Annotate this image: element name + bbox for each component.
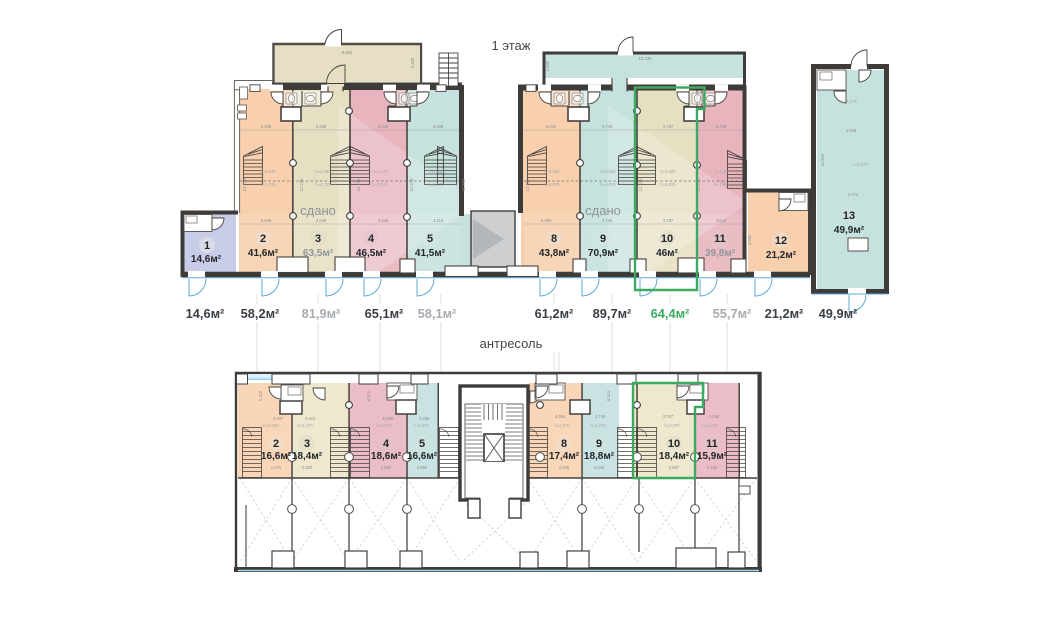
svg-text:39,8м²: 39,8м²: [705, 248, 736, 259]
svg-text:12.318: 12.318: [638, 178, 643, 191]
svg-text:h=3,300: h=3,300: [660, 169, 676, 174]
svg-text:64,4м²: 64,4м²: [651, 306, 690, 321]
svg-text:1.970: 1.970: [271, 465, 282, 470]
svg-text:1 этаж: 1 этаж: [492, 38, 531, 53]
svg-text:9: 9: [600, 233, 606, 245]
svg-text:2.150: 2.150: [707, 465, 718, 470]
svg-text:15,9м²: 15,9м²: [697, 451, 728, 462]
svg-text:46,5м²: 46,5м²: [356, 248, 387, 259]
svg-text:h=4,070: h=4,070: [852, 162, 868, 167]
svg-text:3.246: 3.246: [709, 414, 720, 419]
svg-text:h=4,173: h=4,173: [841, 99, 857, 104]
svg-text:12.275: 12.275: [409, 178, 414, 191]
svg-text:41,6м²: 41,6м²: [248, 248, 279, 259]
svg-text:3.797: 3.797: [663, 414, 674, 419]
svg-text:3.646: 3.646: [316, 218, 327, 223]
svg-text:18,6м²: 18,6м²: [371, 451, 402, 462]
svg-text:1: 1: [204, 240, 210, 252]
svg-text:16,6м²: 16,6м²: [407, 451, 438, 462]
svg-text:3.080: 3.080: [747, 234, 752, 245]
svg-text:5: 5: [427, 233, 433, 245]
svg-text:3.746: 3.746: [602, 124, 613, 129]
svg-text:2: 2: [273, 438, 279, 450]
svg-text:5.008: 5.008: [316, 124, 327, 129]
svg-text:4.115: 4.115: [433, 218, 444, 223]
svg-text:2.600: 2.600: [302, 465, 313, 470]
svg-text:61,2м²: 61,2м²: [535, 306, 574, 321]
svg-text:h=2,200: h=2,200: [263, 423, 279, 428]
svg-text:3: 3: [315, 233, 321, 245]
svg-text:h=2,540: h=2,540: [260, 169, 276, 174]
svg-text:16,6м²: 16,6м²: [261, 451, 292, 462]
svg-text:3.797: 3.797: [663, 218, 674, 223]
svg-text:46м²: 46м²: [656, 248, 679, 259]
svg-text:2.560: 2.560: [381, 465, 392, 470]
svg-text:18,4м²: 18,4м²: [292, 451, 323, 462]
svg-text:21,2м²: 21,2м²: [765, 306, 804, 321]
svg-text:h=2,270: h=2,270: [297, 423, 313, 428]
svg-text:3.296: 3.296: [716, 124, 727, 129]
svg-text:2: 2: [260, 233, 266, 245]
svg-text:h=2,320: h=2,320: [428, 169, 444, 174]
svg-text:h=2,270: h=2,270: [413, 423, 429, 428]
svg-text:3.514: 3.514: [716, 218, 727, 223]
svg-text:70,9м²: 70,9м²: [588, 248, 619, 259]
svg-text:5.004: 5.004: [546, 124, 557, 129]
svg-text:6.110: 6.110: [258, 390, 263, 401]
svg-text:11.964: 11.964: [820, 153, 825, 166]
svg-text:9: 9: [596, 438, 602, 450]
svg-text:12: 12: [775, 235, 787, 247]
svg-text:13: 13: [843, 210, 855, 222]
svg-text:6.110: 6.110: [606, 390, 611, 401]
svg-text:5.465: 5.465: [383, 416, 394, 421]
svg-text:49,9м²: 49,9м²: [819, 306, 858, 321]
svg-text:10: 10: [668, 438, 680, 450]
svg-text:3.287: 3.287: [273, 416, 284, 421]
svg-text:3.4x2: 3.4x2: [305, 416, 316, 421]
svg-text:6.394: 6.394: [541, 218, 552, 223]
svg-text:3.298: 3.298: [433, 124, 444, 129]
svg-text:3.298: 3.298: [261, 124, 272, 129]
svg-text:13.338: 13.338: [639, 56, 652, 61]
svg-text:9.693: 9.693: [342, 50, 353, 55]
svg-text:h=2,270: h=2,270: [664, 423, 680, 428]
svg-text:3.330: 3.330: [410, 57, 415, 68]
svg-text:h=2,300: h=2,300: [600, 169, 616, 174]
svg-text:3.546: 3.546: [261, 218, 272, 223]
svg-text:43,8м²: 43,8м²: [539, 248, 570, 259]
svg-text:12.275: 12.275: [299, 178, 304, 191]
svg-text:сдано: сдано: [300, 203, 336, 218]
svg-text:2.860: 2.860: [417, 465, 428, 470]
svg-text:h=2,300: h=2,300: [714, 169, 730, 174]
svg-text:h=2,390: h=2,390: [315, 169, 331, 174]
svg-text:63,5м²: 63,5м²: [303, 248, 334, 259]
svg-text:2.346: 2.346: [559, 465, 570, 470]
svg-text:3.265: 3.265: [419, 416, 430, 421]
svg-text:h=2,270: h=2,270: [376, 423, 392, 428]
svg-text:h=2,300: h=2,300: [544, 169, 560, 174]
svg-text:58,1м²: 58,1м²: [418, 306, 457, 321]
svg-text:10: 10: [661, 233, 673, 245]
svg-text:4.838: 4.838: [846, 128, 857, 133]
svg-text:3.587: 3.587: [669, 465, 680, 470]
svg-text:h=4,070: h=4,070: [428, 182, 444, 187]
svg-text:11: 11: [706, 438, 718, 450]
svg-text:65,1м²: 65,1м²: [365, 306, 404, 321]
svg-text:18,4м²: 18,4м²: [659, 451, 690, 462]
svg-text:14,6м²: 14,6м²: [191, 254, 222, 265]
svg-text:12.275: 12.275: [356, 178, 361, 191]
svg-text:h=2,320: h=2,320: [372, 169, 388, 174]
svg-text:4: 4: [368, 233, 375, 245]
svg-text:14,6м²: 14,6м²: [186, 306, 225, 321]
svg-text:N=4,070: N=4,070: [714, 182, 731, 187]
svg-text:3.746: 3.746: [602, 218, 613, 223]
svg-text:11.940: 11.940: [461, 178, 466, 191]
svg-text:3.746: 3.746: [595, 414, 606, 419]
svg-text:4: 4: [383, 438, 390, 450]
svg-text:h=2,270: h=2,270: [554, 423, 570, 428]
svg-text:h=4,730: h=4,730: [260, 182, 276, 187]
svg-text:11: 11: [714, 233, 726, 245]
svg-text:h=6,620: h=6,620: [660, 182, 676, 187]
svg-text:21,2м²: 21,2м²: [766, 250, 797, 261]
svg-text:18,8м²: 18,8м²: [584, 451, 615, 462]
svg-text:6.110: 6.110: [366, 390, 371, 401]
svg-text:89,7м²: 89,7м²: [593, 306, 632, 321]
svg-text:h=2,270: h=2,270: [590, 423, 606, 428]
svg-text:сдано: сдано: [585, 203, 621, 218]
svg-text:12.275: 12.275: [242, 178, 247, 191]
svg-text:55,7м²: 55,7м²: [713, 306, 752, 321]
svg-text:17,4м²: 17,4м²: [549, 451, 580, 462]
svg-text:3.945: 3.945: [378, 124, 389, 129]
svg-text:3.797: 3.797: [663, 124, 674, 129]
svg-text:49,9м²: 49,9м²: [834, 225, 865, 236]
svg-text:81,9м²: 81,9м²: [302, 306, 341, 321]
svg-text:1.985: 1.985: [545, 60, 550, 71]
svg-text:12.316: 12.316: [525, 178, 530, 191]
svg-text:h=4,070: h=4,070: [372, 182, 388, 187]
svg-text:8: 8: [561, 438, 567, 450]
svg-text:41,5м²: 41,5м²: [415, 248, 446, 259]
svg-text:2.545: 2.545: [594, 465, 605, 470]
svg-text:58,2м²: 58,2м²: [241, 306, 280, 321]
svg-text:5: 5: [419, 438, 425, 450]
svg-text:4.772: 4.772: [848, 192, 859, 197]
svg-text:8: 8: [551, 233, 557, 245]
svg-text:h=4,670: h=4,670: [544, 182, 560, 187]
svg-text:5.364: 5.364: [555, 414, 566, 419]
svg-text:3.946: 3.946: [378, 218, 389, 223]
svg-text:h=2,270: h=2,270: [702, 423, 718, 428]
svg-text:антресоль: антресоль: [480, 336, 543, 351]
svg-text:h=4,720: h=4,720: [315, 182, 331, 187]
svg-text:h=4,670: h=4,670: [600, 182, 616, 187]
svg-text:3: 3: [304, 438, 310, 450]
